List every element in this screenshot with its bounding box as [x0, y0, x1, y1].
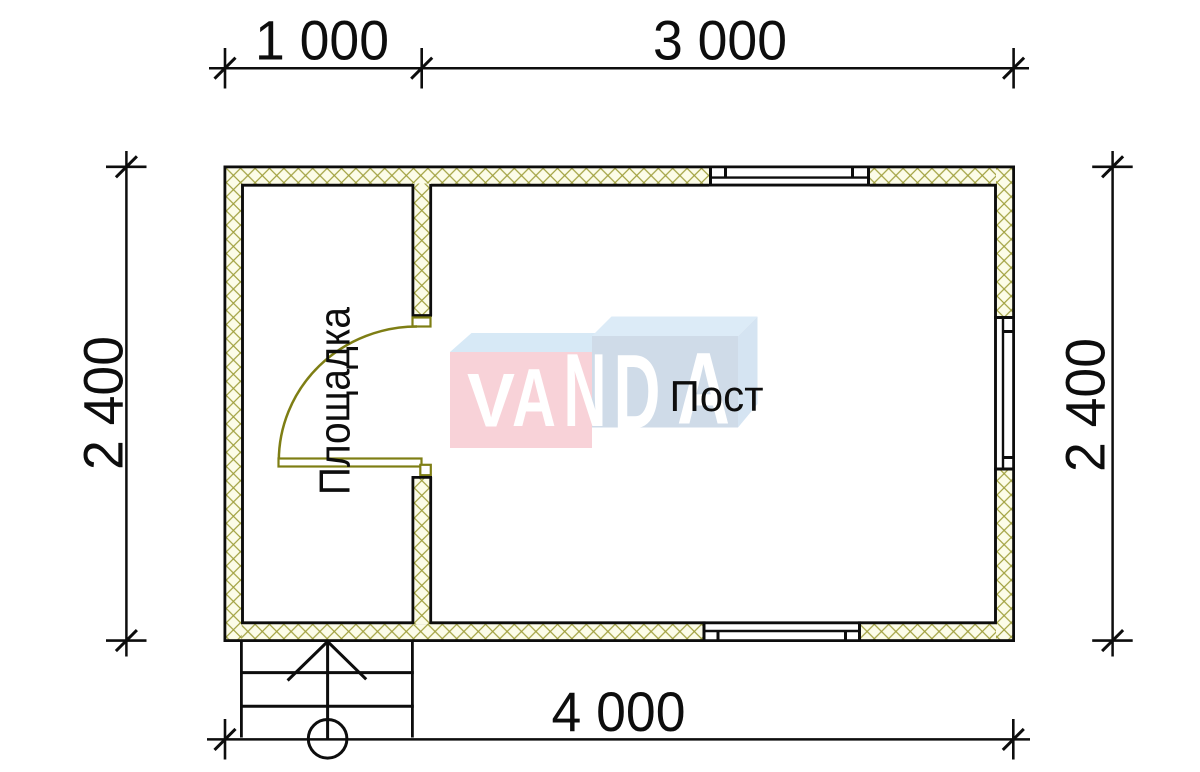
- svg-text:Площадка: Площадка: [311, 307, 360, 495]
- svg-text:D: D: [614, 333, 661, 451]
- svg-text:3 000: 3 000: [653, 10, 787, 72]
- svg-text:1 000: 1 000: [255, 10, 389, 72]
- svg-text:2 400: 2 400: [1055, 338, 1117, 472]
- svg-text:2 400: 2 400: [73, 336, 135, 470]
- svg-text:A: A: [512, 351, 556, 444]
- svg-text:N: N: [564, 333, 607, 449]
- svg-text:4 000: 4 000: [552, 681, 686, 743]
- svg-text:Пост: Пост: [670, 372, 764, 421]
- svg-text:V: V: [467, 359, 515, 444]
